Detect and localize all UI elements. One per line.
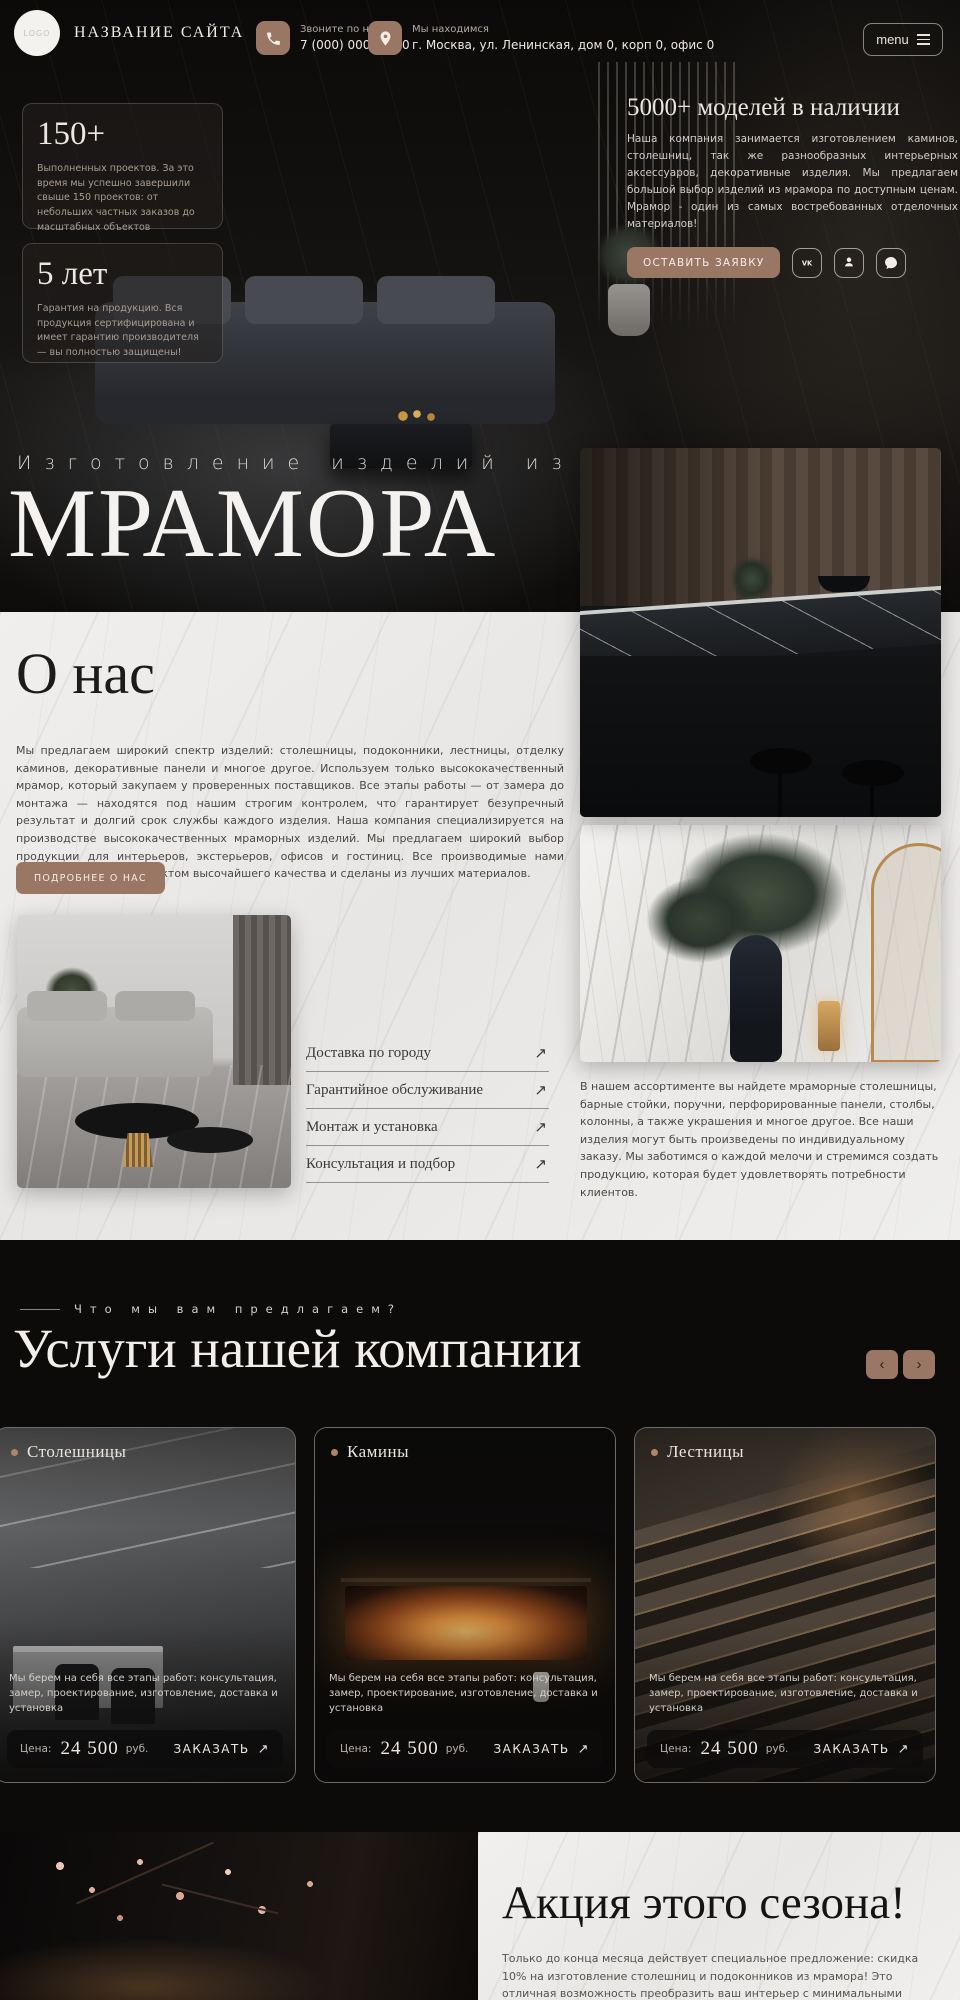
card-overlay — [0, 1428, 295, 1782]
card-title-row: Камины — [331, 1442, 409, 1462]
price-label: Цена: — [20, 1743, 51, 1755]
card-title-row: Лестницы — [651, 1442, 744, 1462]
arrow-up-right-icon: ↗ — [534, 1118, 547, 1136]
phone-icon — [256, 21, 290, 55]
bowl-shape — [818, 576, 870, 592]
price-label: Цена: — [340, 1743, 371, 1755]
promo-panel: Акция этого сезона! Только до конца меся… — [478, 1832, 960, 2000]
bullet-dot-icon — [11, 1449, 18, 1456]
arrow-up-right-icon: ↗ — [534, 1044, 547, 1062]
plant-pot-shape — [608, 284, 650, 336]
branch-shape — [76, 1842, 214, 1905]
promo-title: Акция этого сезона! — [502, 1876, 906, 1930]
offer-block: 5000+ моделей в наличии Наша компания за… — [627, 94, 958, 278]
services-link-list: Доставка по городу ↗ Гарантийное обслужи… — [306, 1035, 549, 1183]
hero-title: МРАМОРА — [8, 474, 497, 573]
tagline-text: Что мы вам предлагаем? — [74, 1302, 402, 1316]
card-title: Лестницы — [667, 1442, 744, 1462]
service-link-delivery[interactable]: Доставка по городу ↗ — [306, 1035, 549, 1072]
carousel-prev-button[interactable]: ‹ — [866, 1350, 898, 1379]
order-button[interactable]: ЗАКАЗАТЬ ↗ — [813, 1742, 910, 1757]
price-value: 24 500 — [380, 1738, 438, 1760]
offer-actions: ОСТАВИТЬ ЗАЯВКУ VK — [627, 247, 958, 278]
vk-button[interactable]: VK — [792, 248, 822, 278]
shelf-column-shape — [233, 915, 291, 1085]
stat-text: Гарантия на продукцию. Вся продукция сер… — [37, 302, 208, 361]
floor-shape — [580, 656, 941, 817]
assortment-text: В нашем ассортименте вы найдете мраморны… — [580, 1078, 944, 1201]
arrow-up-right-icon: ↗ — [258, 1742, 270, 1757]
bullet-dot-icon — [331, 1449, 338, 1456]
stat-card-projects: 150+ Выполненных проектов. За это время … — [22, 103, 223, 229]
promo-section: Акция этого сезона! Только до конца меся… — [0, 1832, 960, 2000]
vase-shape — [730, 935, 782, 1062]
card-description: Мы берем на себя все этапы работ: консул… — [9, 1671, 281, 1716]
living-room-photo — [17, 915, 291, 1188]
stat-value: 5 лет — [37, 256, 208, 293]
card-overlay — [635, 1428, 935, 1782]
service-card-countertops[interactable]: Столешницы Мы берем на себя все этапы ра… — [0, 1427, 296, 1783]
price-units: руб. — [126, 1743, 149, 1755]
sofa-shape — [17, 1007, 213, 1077]
messenger-icon — [883, 255, 899, 271]
menu-button-label: menu — [876, 32, 909, 47]
decor-bottles-shape — [395, 404, 441, 424]
arrow-up-right-icon: ↗ — [534, 1155, 547, 1173]
price-value: 24 500 — [60, 1738, 118, 1760]
chevron-right-icon: › — [917, 1356, 922, 1373]
offer-title: 5000+ моделей в наличии — [627, 94, 958, 122]
odnoklassniki-button[interactable] — [834, 248, 864, 278]
price-units: руб. — [766, 1743, 789, 1755]
candle-shape — [818, 1001, 840, 1051]
round-table-shape — [167, 1127, 253, 1153]
stool-shape — [842, 760, 904, 786]
order-button[interactable]: ЗАКАЗАТЬ ↗ — [493, 1742, 590, 1757]
messenger-button[interactable] — [876, 248, 906, 278]
carousel-next-button[interactable]: › — [903, 1350, 935, 1379]
price-bar: Цена: 24 500 руб. ЗАКАЗАТЬ ↗ — [327, 1730, 603, 1768]
arrow-up-right-icon: ↗ — [578, 1742, 590, 1757]
service-card-stairs[interactable]: Лестницы Мы берем на себя все этапы рабо… — [634, 1427, 936, 1783]
blossom-kitchen-photo — [0, 1832, 478, 2000]
branch-shape — [162, 1884, 279, 1915]
logo-block[interactable]: LOGO НАЗВАНИЕ САЙТА — [14, 10, 244, 56]
stat-text: Выполненных проектов. За это время мы ус… — [37, 162, 208, 236]
leave-request-button[interactable]: ОСТАВИТЬ ЗАЯВКУ — [627, 247, 780, 278]
vk-icon: VK — [799, 255, 815, 271]
stool-shape — [750, 748, 812, 774]
address-contact[interactable]: Мы находимся г. Москва, ул. Ленинская, д… — [368, 21, 714, 55]
card-description: Мы берем на себя все этапы работ: консул… — [649, 1671, 921, 1716]
address-value: г. Москва, ул. Ленинская, дом 0, корп 0,… — [412, 38, 714, 52]
card-overlay — [315, 1428, 615, 1782]
about-title: О нас — [16, 640, 155, 707]
odnoklassniki-icon — [841, 255, 857, 271]
card-title: Столешницы — [27, 1442, 126, 1462]
card-title-row: Столешницы — [11, 1442, 126, 1462]
marble-vase-photo — [580, 825, 941, 1062]
menu-button[interactable]: menu — [863, 23, 943, 56]
site-header: LOGO НАЗВАНИЕ САЙТА Звоните по номеру 7 … — [0, 0, 960, 66]
site-name: НАЗВАНИЕ САЙТА — [74, 24, 244, 42]
section-tagline: Что мы вам предлагаем? — [20, 1302, 402, 1316]
hamburger-icon — [917, 34, 930, 45]
about-more-button[interactable]: ПОДРОБНЕЕ О НАС — [16, 862, 165, 894]
tagline-line — [20, 1309, 60, 1310]
gold-mirror-shape — [871, 843, 941, 1062]
location-pin-icon — [368, 21, 402, 55]
offer-text: Наша компания занимается изготовлением к… — [627, 131, 958, 233]
arrow-up-right-icon: ↗ — [898, 1742, 910, 1757]
order-button[interactable]: ЗАКАЗАТЬ ↗ — [173, 1742, 270, 1757]
service-link-consulting[interactable]: Консультация и подбор ↗ — [306, 1146, 549, 1183]
bullet-dot-icon — [651, 1449, 658, 1456]
chevron-left-icon: ‹ — [880, 1356, 885, 1373]
kitchen-counter-photo — [580, 448, 941, 817]
services-section: Что мы вам предлагаем? Услуги нашей комп… — [0, 1240, 960, 1832]
price-bar: Цена: 24 500 руб. ЗАКАЗАТЬ ↗ — [647, 1730, 923, 1768]
price-value: 24 500 — [700, 1738, 758, 1760]
svg-text:VK: VK — [802, 259, 813, 267]
price-bar: Цена: 24 500 руб. ЗАКАЗАТЬ ↗ — [7, 1730, 283, 1768]
service-link-installation[interactable]: Монтаж и установка ↗ — [306, 1109, 549, 1146]
gold-table-base-shape — [123, 1133, 153, 1167]
stat-card-warranty: 5 лет Гарантия на продукцию. Вся продукц… — [22, 243, 223, 363]
cushion-shape — [377, 276, 495, 324]
address-label: Мы находимся — [412, 24, 714, 35]
cushion-shape — [245, 276, 363, 324]
card-title: Камины — [347, 1442, 409, 1462]
price-units: руб. — [446, 1743, 469, 1755]
services-title: Услуги нашей компании — [13, 1320, 582, 1378]
card-description: Мы берем на себя все этапы работ: консул… — [329, 1671, 601, 1716]
page: LOGO НАЗВАНИЕ САЙТА Звоните по номеру 7 … — [0, 0, 960, 2000]
arrow-up-right-icon: ↗ — [534, 1081, 547, 1099]
price-label: Цена: — [660, 1743, 691, 1755]
service-link-warranty[interactable]: Гарантийное обслуживание ↗ — [306, 1072, 549, 1109]
promo-text: Только до конца месяца действует специал… — [502, 1950, 946, 2000]
logo: LOGO — [14, 10, 60, 56]
herb-plant-shape — [730, 556, 774, 602]
stat-value: 150+ — [37, 116, 208, 153]
service-card-fireplaces[interactable]: Камины Мы берем на себя все этапы работ:… — [314, 1427, 616, 1783]
